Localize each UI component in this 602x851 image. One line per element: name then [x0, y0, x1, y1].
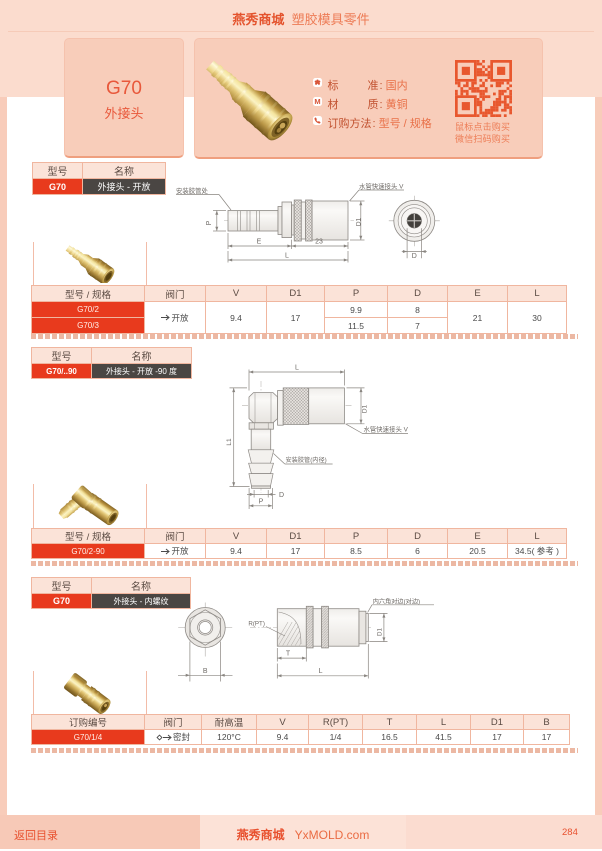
svg-text:水管快速接头 V: 水管快速接头 V	[364, 425, 409, 434]
svg-text:23: 23	[315, 239, 323, 246]
svg-text:内六角对边(对边): 内六角对边(对边)	[373, 598, 420, 606]
svg-text:安装胶管处: 安装胶管处	[176, 186, 209, 195]
svg-text:L1: L1	[226, 438, 233, 446]
svg-text:水管快速接头 V: 水管快速接头 V	[359, 182, 404, 191]
svg-text:T: T	[286, 651, 291, 658]
svg-text:E: E	[257, 239, 262, 246]
svg-text:L: L	[285, 253, 289, 260]
svg-text:P: P	[259, 499, 264, 506]
svg-text:安装胶管(内径): 安装胶管(内径)	[286, 456, 327, 464]
svg-text:D: D	[412, 253, 417, 260]
svg-text:L: L	[319, 668, 323, 675]
svg-text:R(PT): R(PT)	[248, 621, 265, 628]
svg-text:L: L	[295, 365, 299, 372]
svg-text:D1: D1	[356, 217, 363, 226]
svg-text:B: B	[203, 668, 208, 675]
svg-text:D: D	[279, 492, 284, 499]
svg-text:D1: D1	[362, 404, 369, 413]
svg-text:P: P	[206, 220, 213, 225]
svg-text:D1: D1	[376, 627, 383, 635]
